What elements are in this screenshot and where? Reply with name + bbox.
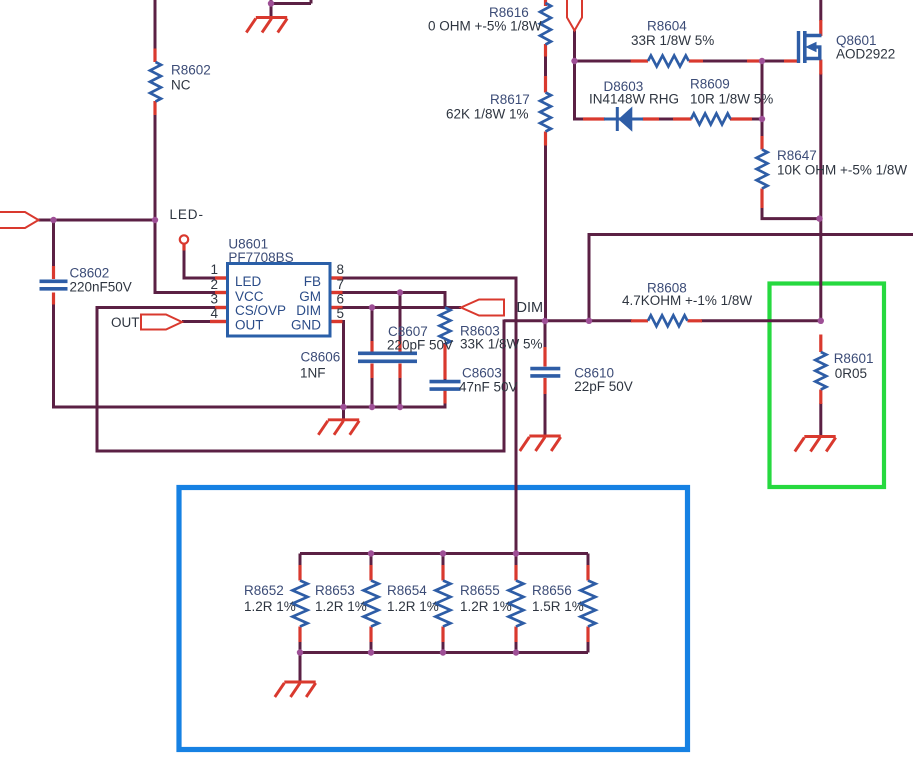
svg-text:R8656: R8656 <box>532 583 572 598</box>
svg-text:1.2R 1%: 1.2R 1% <box>387 599 439 614</box>
svg-text:DIM: DIM <box>517 300 544 316</box>
svg-text:R8602: R8602 <box>171 63 211 78</box>
svg-text:33K 1/8W 5%: 33K 1/8W 5% <box>460 337 543 352</box>
svg-text:1NF: 1NF <box>300 366 326 381</box>
svg-text:R8653: R8653 <box>315 583 355 598</box>
svg-text:1.2R 1%: 1.2R 1% <box>460 599 512 614</box>
svg-text:3: 3 <box>210 292 218 307</box>
svg-text:R8647: R8647 <box>777 148 817 163</box>
svg-text:R8601: R8601 <box>834 351 874 366</box>
svg-text:7: 7 <box>337 277 345 292</box>
svg-text:0R05: 0R05 <box>835 366 867 381</box>
svg-text:IN4148W RHG: IN4148W RHG <box>589 92 679 107</box>
svg-text:62K 1/8W 1%: 62K 1/8W 1% <box>446 107 529 122</box>
svg-text:5: 5 <box>337 306 345 321</box>
svg-text:C8603: C8603 <box>462 366 502 381</box>
svg-text:C8606: C8606 <box>301 350 341 365</box>
svg-text:220nF50V: 220nF50V <box>70 280 132 295</box>
svg-text:1: 1 <box>210 262 218 277</box>
svg-text:AOD2922: AOD2922 <box>836 47 895 62</box>
svg-text:C8602: C8602 <box>70 266 110 281</box>
svg-text:6: 6 <box>337 292 345 307</box>
svg-text:1.5R 1%: 1.5R 1% <box>532 599 584 614</box>
svg-text:R8654: R8654 <box>387 583 427 598</box>
svg-text:NC: NC <box>171 78 191 93</box>
svg-text:R8604: R8604 <box>647 19 687 34</box>
svg-text:4.7KOHM +-1% 1/8W: 4.7KOHM +-1% 1/8W <box>622 293 752 308</box>
svg-text:4: 4 <box>210 306 218 321</box>
svg-text:OUT: OUT <box>235 317 264 332</box>
svg-text:VCC: VCC <box>235 289 264 304</box>
svg-text:220pF 50V: 220pF 50V <box>387 338 453 353</box>
svg-text:8: 8 <box>337 262 345 277</box>
svg-text:22pF 50V: 22pF 50V <box>574 379 633 394</box>
svg-text:R8655: R8655 <box>460 583 500 598</box>
svg-text:OUT: OUT <box>111 315 140 330</box>
svg-text:10R 1/8W 5%: 10R 1/8W 5% <box>690 92 773 107</box>
svg-text:CS/OVP: CS/OVP <box>235 303 286 318</box>
svg-text:DIM: DIM <box>296 303 321 318</box>
svg-text:0 OHM +-5% 1/8W: 0 OHM +-5% 1/8W <box>428 19 542 34</box>
svg-text:GND: GND <box>291 317 321 332</box>
svg-text:R8652: R8652 <box>244 583 284 598</box>
svg-text:FB: FB <box>304 274 321 289</box>
svg-text:LED: LED <box>235 274 262 289</box>
svg-text:GM: GM <box>299 289 321 304</box>
svg-text:47nF 50V: 47nF 50V <box>459 380 518 395</box>
svg-text:1.2R 1%: 1.2R 1% <box>315 599 367 614</box>
svg-text:R8617: R8617 <box>490 92 530 107</box>
svg-text:33R 1/8W 5%: 33R 1/8W 5% <box>631 33 714 48</box>
svg-text:PF7708BS: PF7708BS <box>228 250 293 265</box>
svg-text:R8609: R8609 <box>690 77 730 92</box>
svg-text:LED-: LED- <box>170 207 204 222</box>
svg-text:10K OHM +-5% 1/8W: 10K OHM +-5% 1/8W <box>777 163 907 178</box>
svg-text:1.2R 1%: 1.2R 1% <box>244 599 296 614</box>
svg-text:2: 2 <box>210 277 218 292</box>
